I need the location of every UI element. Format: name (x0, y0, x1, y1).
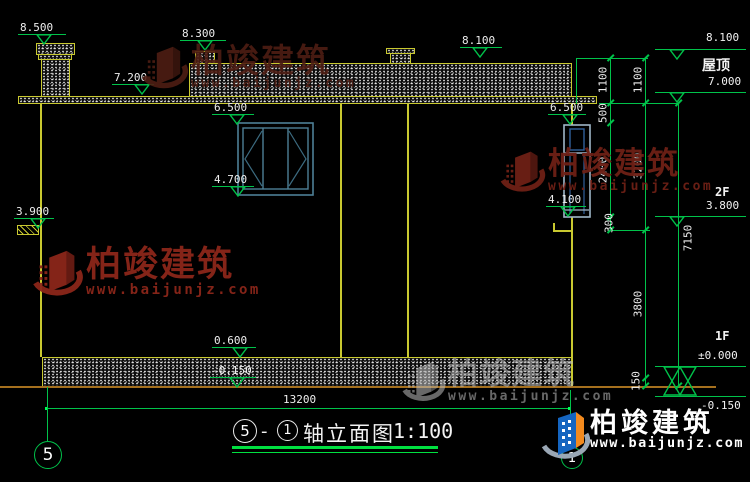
level-line-8100-right (655, 49, 746, 50)
dim-text-total-height: 7150 (682, 225, 695, 252)
brand-building-icon (398, 360, 448, 410)
watermark-brand: 柏竣建筑 (548, 149, 713, 180)
axis-bubble-left: 5 (34, 441, 62, 469)
watermark-bottom: 柏竣建筑 www.baijunjz.com (398, 360, 613, 410)
cad-elevation-drawing: 8.500 8.300 7.200 8.100 6.500 4.700 3.90… (0, 0, 750, 482)
brand-logo: 柏竣建筑 www.baijunjz.com (538, 410, 744, 468)
level-text: 6.500 (214, 101, 247, 114)
level-triangle-icon (560, 206, 576, 217)
watermark-url: www.baijunjz.com (86, 283, 261, 297)
title-axis-circle-start: 5 (233, 419, 257, 443)
level-marker-m0150-mid: -0.150 (210, 377, 256, 378)
floor1-label: 1F (715, 329, 729, 343)
level-text: 4.700 (214, 173, 247, 186)
title-underline-thick (232, 446, 438, 449)
mid-wall-line-2 (407, 104, 409, 357)
level-triangle-icon (36, 34, 52, 45)
dim-chain-inner (610, 58, 611, 230)
watermark-brand: 柏竣建筑 (86, 248, 261, 283)
floor-step-vertical (553, 223, 555, 231)
dim-text: 1100 (632, 67, 645, 94)
level-text: -0.150 (212, 364, 252, 377)
connector-8100 (576, 58, 648, 59)
level-marker-0600: 0.600 (212, 347, 256, 348)
chimney-body (41, 59, 70, 97)
roof-vent-body (390, 53, 411, 64)
brand-building-icon (137, 44, 191, 98)
level-text-0000: ±0.000 (698, 349, 738, 362)
level-line-7000 (655, 92, 746, 93)
dim-chain-middle (645, 58, 646, 386)
drawing-title: 轴立面图 (303, 418, 395, 448)
brand-url: www.baijunjz.com (590, 437, 744, 451)
level-text-7000: 7.000 (708, 75, 741, 88)
axis-number: 5 (43, 445, 54, 465)
level-marker-8100-mid: 8.100 (460, 47, 502, 48)
level-triangle-icon (30, 218, 46, 229)
brand-building-icon (28, 248, 86, 306)
brand-name: 柏竣建筑 (590, 410, 744, 437)
brand-building-icon (496, 149, 548, 201)
dim-text: 3800 (632, 291, 645, 318)
watermark-url: www.baijunjz.com (448, 390, 613, 403)
level-triangle-icon (669, 49, 685, 60)
watermark-top: 柏竣建筑 www.baijunjz.com (137, 44, 356, 98)
extension-line-roof-edge (576, 58, 577, 104)
level-text: 6.500 (550, 101, 583, 114)
level-line-3800 (655, 216, 746, 217)
watermark-brand: 柏竣建筑 (191, 44, 356, 77)
level-text: 3.900 (16, 205, 49, 218)
dim-text-total-width: 13200 (283, 393, 316, 406)
floor-step-horizontal (553, 230, 572, 232)
title-underline-thin (232, 452, 438, 453)
level-marker-4100: 4.100 (546, 206, 586, 207)
mid-wall-line-1 (340, 104, 342, 357)
dim-text: 500 (597, 103, 610, 123)
level-marker-6500-mid: 6.500 (212, 114, 254, 115)
level-marker-4700: 4.700 (212, 186, 254, 187)
title-axis-number: 1 (283, 423, 291, 438)
watermark-left: 柏竣建筑 www.baijunjz.com (28, 248, 261, 306)
title-dash: - (261, 421, 268, 442)
middle-window (237, 122, 314, 196)
watermark-brand: 柏竣建筑 (448, 360, 613, 390)
dim-text: 150 (630, 371, 643, 391)
brand-building-color-icon (538, 410, 590, 468)
level-triangle-icon (472, 47, 488, 58)
level-marker-6500-right: 6.500 (548, 114, 586, 115)
dim-text: 1100 (597, 67, 610, 94)
axis-extension-left (47, 387, 48, 441)
level-triangle-icon (229, 377, 245, 388)
level-triangle-icon (230, 186, 246, 197)
watermark-url: www.baijunjz.com (548, 180, 713, 193)
roof-label: 屋顶 (702, 55, 730, 75)
title-axis-circle-end: 1 (277, 420, 298, 441)
level-triangle-icon (232, 347, 248, 358)
level-marker-8500: 8.500 (18, 34, 66, 35)
title-axis-number: 5 (240, 422, 250, 440)
watermark-url: www.baijunjz.com (191, 77, 356, 90)
watermark-right: 柏竣建筑 www.baijunjz.com (496, 149, 713, 201)
level-text: 8.500 (20, 21, 53, 34)
level-text-8100-right: 8.100 (706, 31, 739, 44)
left-wall-line (40, 104, 42, 357)
level-text: 8.300 (182, 27, 215, 40)
dim-text: 300 (603, 213, 616, 233)
level-text: 8.100 (462, 34, 495, 47)
level-marker-3900: 3.900 (14, 218, 54, 219)
level-triangle-icon (562, 114, 578, 125)
level-text: 0.600 (214, 334, 247, 347)
drawing-scale: 1:100 (393, 419, 453, 443)
floor2-label: 2F (715, 185, 729, 199)
level-triangle-icon (229, 114, 245, 125)
